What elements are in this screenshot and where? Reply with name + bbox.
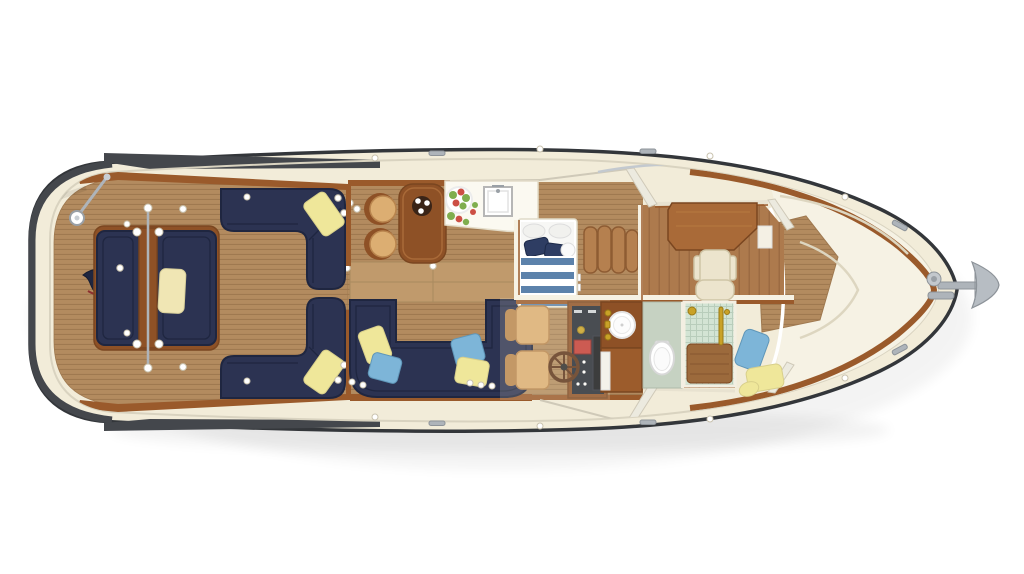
dinette-table (399, 184, 446, 263)
head-vanity (601, 302, 642, 392)
bench-pillow (158, 268, 186, 313)
anchor-fluke (972, 262, 999, 308)
master-bed (518, 219, 577, 307)
shower (684, 302, 735, 386)
desk-chair (694, 250, 736, 300)
yacht-floor-plan-svg (0, 0, 1024, 574)
salon-step (344, 262, 522, 302)
toilet-room (643, 302, 684, 388)
hardtop-glass (500, 298, 610, 400)
stern-bench (94, 204, 219, 372)
shower-rail (719, 307, 723, 345)
yacht-floor-plan (0, 0, 1024, 574)
shower-fixture (688, 307, 696, 315)
helm-station (500, 298, 610, 400)
